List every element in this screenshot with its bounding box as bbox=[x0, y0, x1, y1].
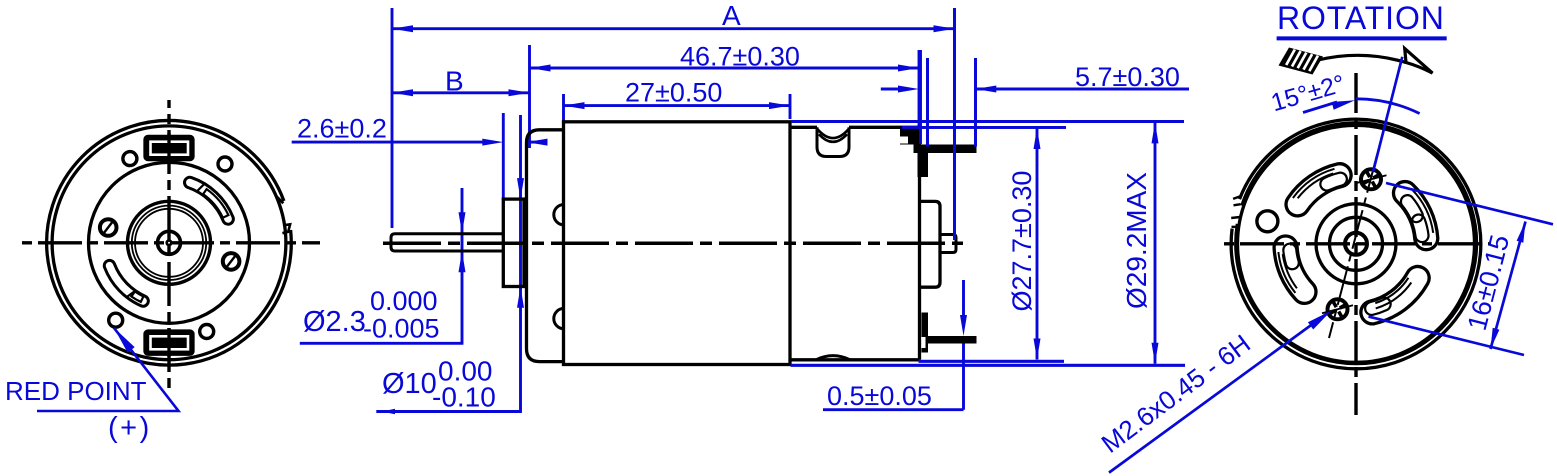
svg-text:-0.10: -0.10 bbox=[432, 382, 496, 413]
svg-text:-0.005: -0.005 bbox=[363, 314, 440, 344]
svg-text:RED POINT: RED POINT bbox=[5, 376, 147, 406]
svg-text:2.6±0.2: 2.6±0.2 bbox=[297, 114, 387, 144]
svg-text:0.5±0.05: 0.5±0.05 bbox=[827, 381, 932, 411]
svg-text:A: A bbox=[722, 0, 741, 31]
svg-text:0.000: 0.000 bbox=[370, 286, 438, 316]
svg-text:Ø2.3: Ø2.3 bbox=[303, 306, 366, 338]
svg-text:27±0.50: 27±0.50 bbox=[625, 78, 722, 108]
svg-text:Ø27.7±0.30: Ø27.7±0.30 bbox=[1007, 171, 1037, 312]
svg-text:5.7±0.30: 5.7±0.30 bbox=[1075, 62, 1180, 92]
svg-text:Ø29.2MAX: Ø29.2MAX bbox=[1121, 172, 1152, 309]
svg-text:Ø10: Ø10 bbox=[382, 368, 437, 400]
svg-text:46.7±0.30: 46.7±0.30 bbox=[680, 42, 800, 72]
svg-text:B: B bbox=[445, 66, 464, 97]
svg-text:(+): (+) bbox=[108, 412, 152, 444]
svg-text:ROTATION: ROTATION bbox=[1277, 0, 1445, 36]
